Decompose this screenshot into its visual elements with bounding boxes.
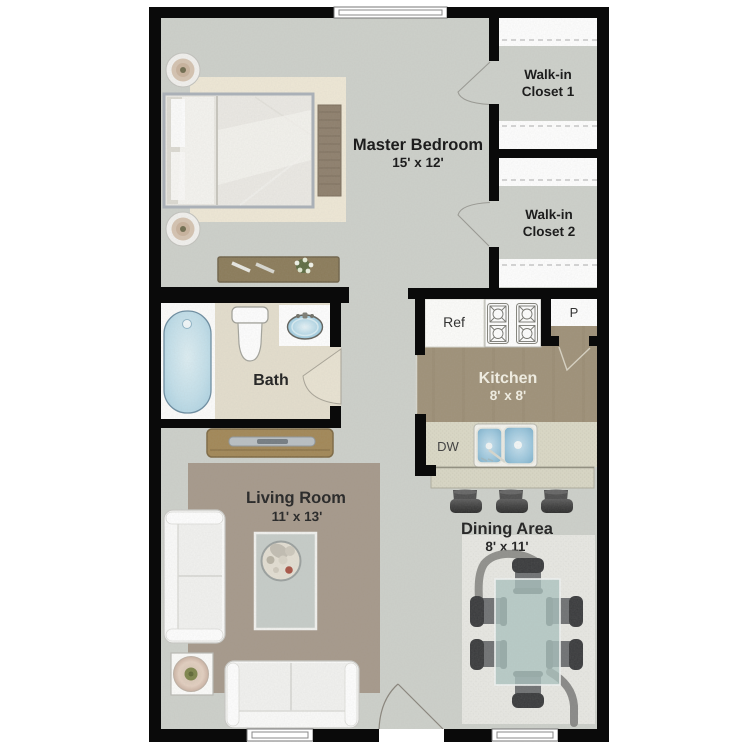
svg-text:Walk-in: Walk-in	[525, 207, 573, 222]
svg-text:Closet 2: Closet 2	[523, 224, 576, 239]
svg-text:Closet 1: Closet 1	[522, 84, 575, 99]
svg-text:Master Bedroom: Master Bedroom	[353, 136, 483, 154]
svg-text:15' x 12': 15' x 12'	[392, 155, 443, 170]
svg-text:Walk-in: Walk-in	[524, 67, 572, 82]
